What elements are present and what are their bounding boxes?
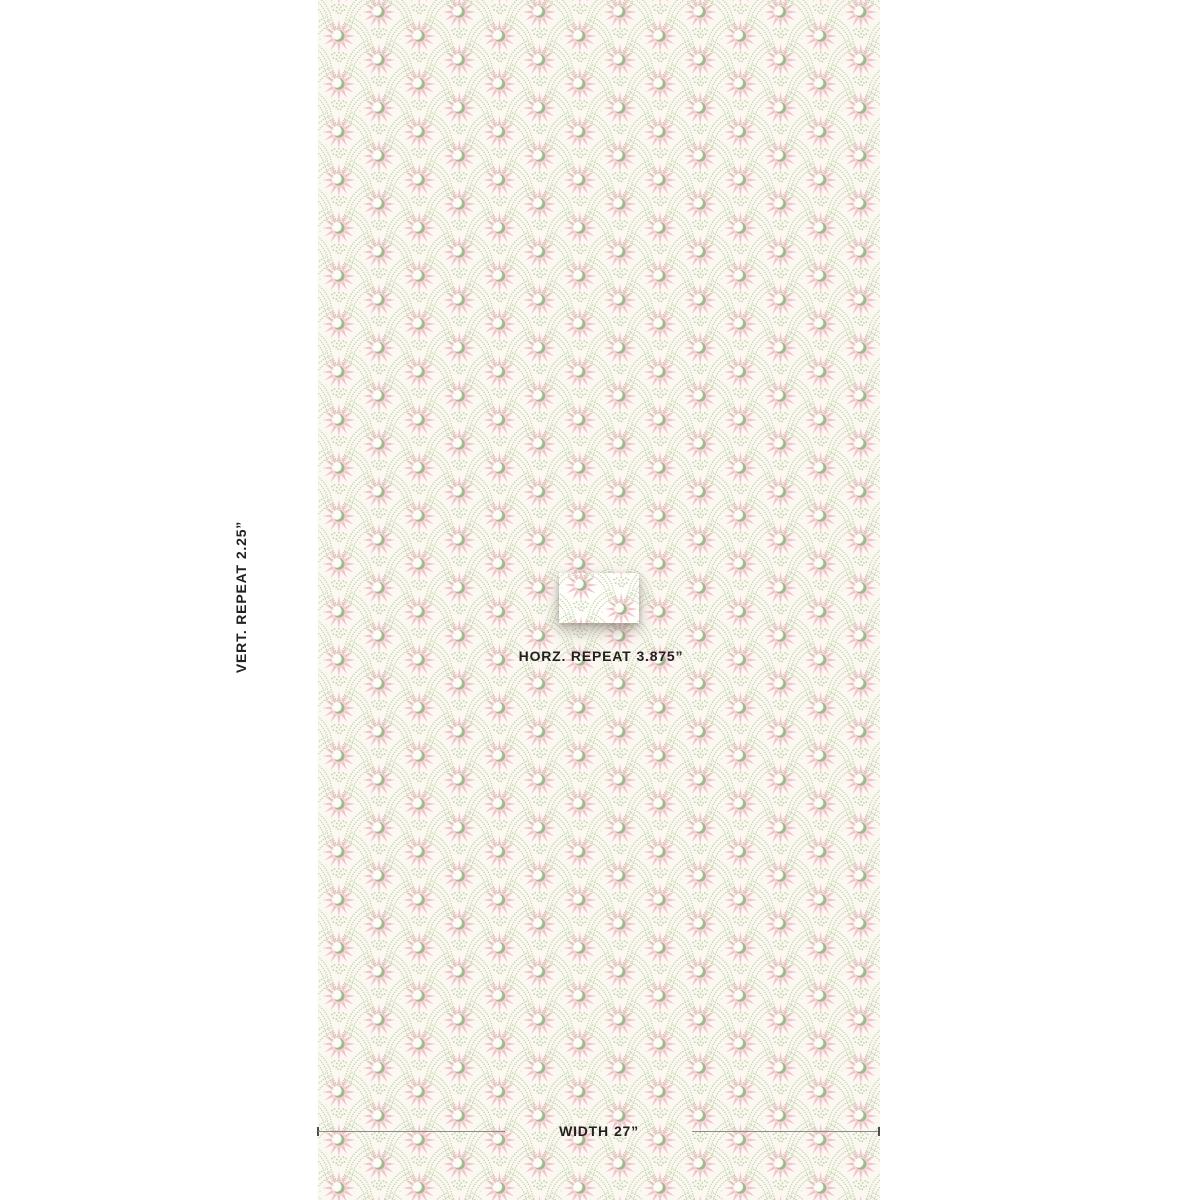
horizontal-repeat-value: 3.875” bbox=[636, 648, 683, 664]
repeat-card-pattern bbox=[559, 573, 639, 623]
width-measure-line-left bbox=[318, 1131, 505, 1132]
width-measure-tick-right bbox=[878, 1127, 880, 1136]
horizontal-repeat-label: HORZ. REPEAT bbox=[519, 648, 632, 664]
horizontal-repeat-highlight-card bbox=[559, 573, 639, 623]
vertical-repeat-annotation: VERT. REPEAT 2.25” bbox=[230, 497, 252, 697]
horizontal-repeat-annotation: HORZ. REPEAT 3.875” bbox=[459, 647, 743, 665]
width-label-group: WIDTH 27” bbox=[497, 1122, 701, 1140]
vertical-repeat-label: VERT. REPEAT bbox=[233, 564, 249, 673]
width-measure-line-right bbox=[692, 1131, 879, 1132]
vertical-repeat-value: 2.25” bbox=[233, 521, 249, 559]
wallpaper-product-image: VERT. REPEAT 2.25” HORZ. REPEAT 3.875” W… bbox=[0, 0, 1200, 1200]
width-value: 27” bbox=[614, 1123, 639, 1139]
width-label: WIDTH bbox=[559, 1123, 609, 1139]
